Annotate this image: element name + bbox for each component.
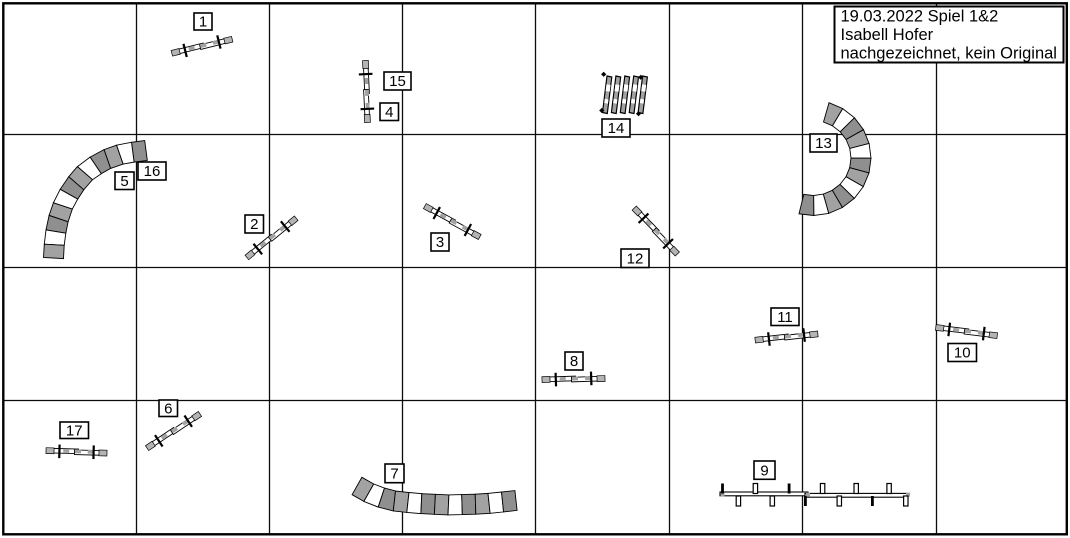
svg-text:13: 13 (815, 135, 832, 152)
svg-text:14: 14 (608, 120, 625, 137)
svg-text:7: 7 (390, 466, 398, 483)
svg-text:10: 10 (954, 345, 971, 362)
svg-text:16: 16 (144, 163, 161, 180)
svg-text:11: 11 (777, 309, 793, 326)
svg-text:nachgezeichnet, kein Original: nachgezeichnet, kein Original (841, 45, 1057, 63)
svg-text:19.03.2022 Spiel 1&2: 19.03.2022 Spiel 1&2 (841, 8, 999, 26)
svg-text:1: 1 (199, 14, 207, 31)
svg-text:4: 4 (385, 104, 393, 121)
svg-text:9: 9 (760, 462, 768, 479)
svg-text:17: 17 (66, 422, 83, 439)
svg-text:Isabell Hofer: Isabell Hofer (841, 26, 934, 44)
svg-text:15: 15 (389, 73, 406, 90)
svg-text:12: 12 (627, 250, 644, 267)
svg-text:2: 2 (250, 216, 258, 233)
svg-text:5: 5 (120, 173, 128, 190)
svg-text:6: 6 (164, 400, 172, 417)
svg-text:3: 3 (436, 234, 444, 251)
svg-text:8: 8 (570, 353, 578, 370)
